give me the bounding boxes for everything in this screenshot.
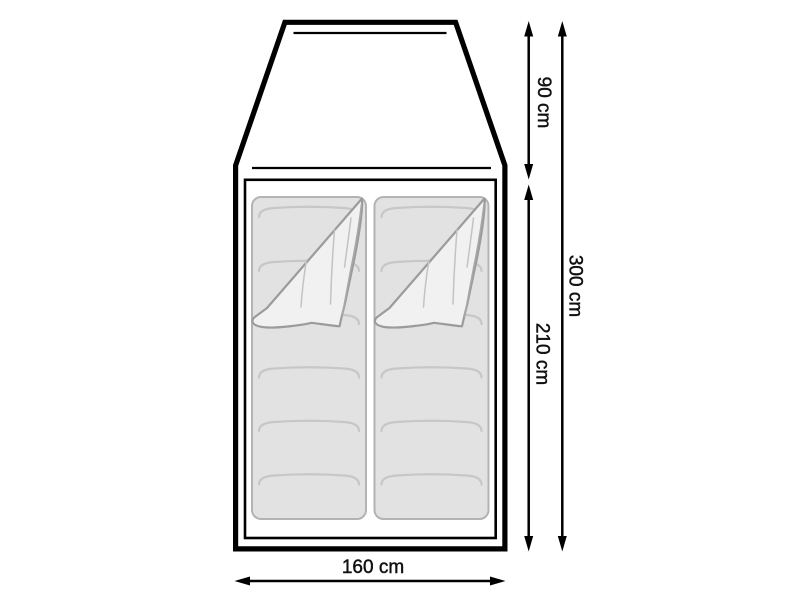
- svg-text:90 cm: 90 cm: [533, 77, 554, 129]
- svg-text:210 cm: 210 cm: [532, 323, 553, 385]
- svg-text:300 cm: 300 cm: [565, 255, 586, 317]
- svg-text:160 cm: 160 cm: [342, 557, 404, 578]
